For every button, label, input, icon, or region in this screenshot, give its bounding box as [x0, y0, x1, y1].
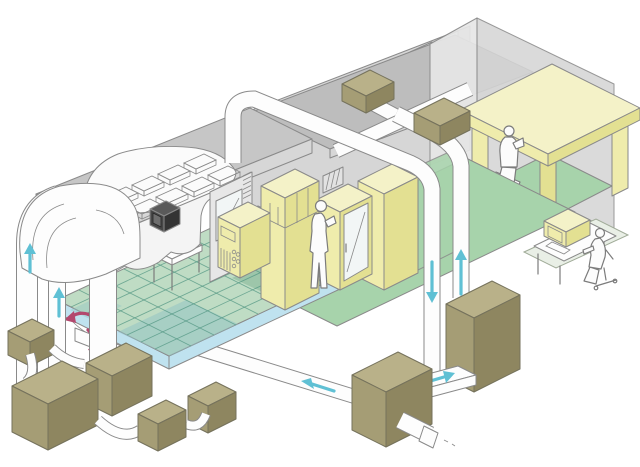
- flex-duct: [98, 420, 140, 434]
- chair-wheel: [613, 279, 617, 283]
- unit-box: [138, 400, 186, 451]
- cabinet-side: [384, 177, 418, 290]
- process-cabinet: [218, 202, 270, 278]
- person-head: [596, 229, 605, 238]
- cleanroom-hvac-diagram: cleanroom-hvac-airflow-system: [0, 0, 640, 467]
- person-head: [316, 201, 327, 212]
- person-head: [504, 126, 514, 136]
- person-legs: [584, 267, 599, 284]
- isometric-illustration: cleanroom-hvac-airflow-system: [0, 0, 640, 467]
- chair-wheel: [594, 286, 598, 290]
- glass-door: [344, 203, 368, 281]
- stub-dashes: [444, 440, 455, 446]
